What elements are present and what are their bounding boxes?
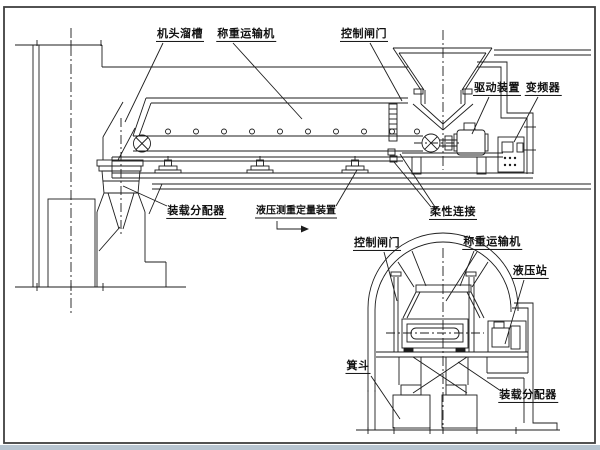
conveyor-casing xyxy=(133,98,408,136)
label-loading-distributor-top: 装载分配器 xyxy=(166,205,226,219)
conveyor-belt xyxy=(133,129,460,152)
motor xyxy=(457,130,485,155)
reference-arrow xyxy=(277,221,309,233)
label-control-gate-bottom: 控制闸门 xyxy=(353,237,401,251)
label-drive-unit: 驱动装置 xyxy=(473,82,521,96)
weighing-pedestals xyxy=(155,156,368,173)
label-skip-bucket: 箕斗 xyxy=(346,360,371,374)
frequency-converter-cabinet xyxy=(498,137,524,172)
feed-hopper xyxy=(393,30,492,170)
label-frequency-converter: 变频器 xyxy=(525,82,562,96)
skip-bucket-right xyxy=(442,395,477,428)
cross-hopper xyxy=(391,251,488,352)
label-flexible-connection: 柔性连接 xyxy=(429,206,477,220)
diagram-linework xyxy=(0,0,600,450)
skip-loading xyxy=(393,357,477,428)
loading-distributor-side xyxy=(97,160,166,287)
label-hydraulic-weighing-device: 液压测重定量装置 xyxy=(255,206,337,219)
label-control-gate-top: 控制闸门 xyxy=(340,28,388,42)
label-weighing-conveyor-top: 称重运输机 xyxy=(216,28,276,42)
idler-rollers xyxy=(166,129,420,134)
skip-box-side xyxy=(48,199,95,287)
side-view xyxy=(15,28,591,315)
leader-lines-side xyxy=(123,43,538,207)
label-loading-distributor-bottom: 装载分配器 xyxy=(498,389,558,403)
drive-unit-assembly xyxy=(402,123,503,174)
label-hydraulic-station: 液压站 xyxy=(512,265,549,279)
control-gate-side xyxy=(389,104,397,141)
label-weighing-conveyor-bottom: 称重运输机 xyxy=(462,236,522,250)
label-head-chute: 机头溜槽 xyxy=(156,28,204,42)
diagram-page: 机头溜槽 称重运输机 控制闸门 驱动装置 变频器 装载分配器 液压测重定量装置 … xyxy=(0,0,600,450)
head-chute xyxy=(103,102,135,236)
skip-bucket-left xyxy=(393,395,430,428)
bottom-edge-band xyxy=(0,445,600,450)
